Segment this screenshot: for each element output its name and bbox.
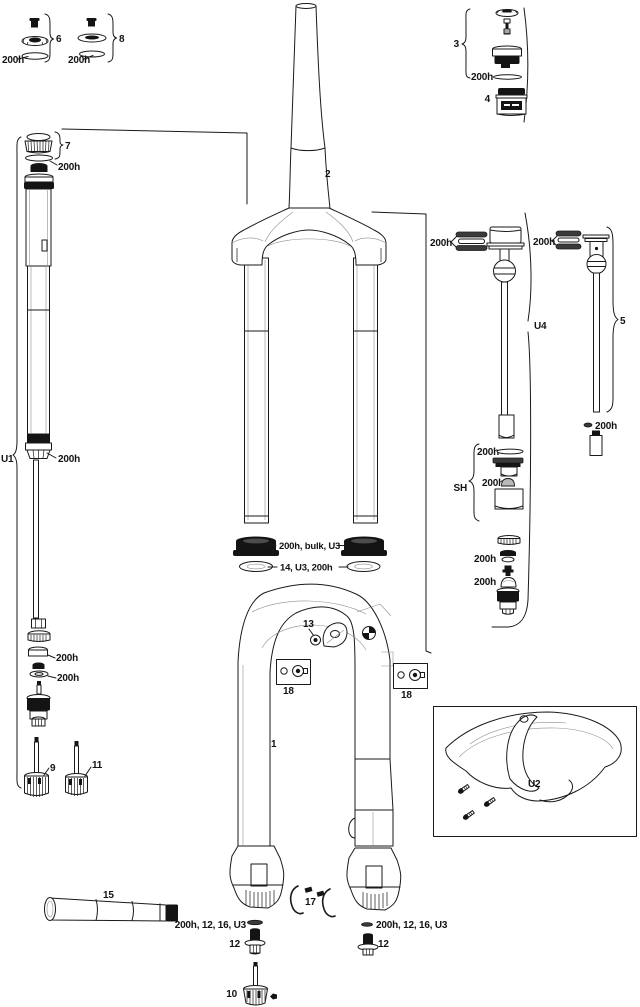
label-group-sh: SH (454, 483, 468, 494)
csu-assembly-2: 2 (232, 4, 386, 524)
label-item-12-right: 12 (378, 939, 389, 950)
fender-bolt-2 (483, 797, 496, 808)
label-200h-rebound-washer: 200h (57, 673, 79, 684)
label-200h-u4-rings: 200h (430, 238, 452, 249)
label-item-1: 1 (271, 739, 277, 750)
fender-bolt-1 (457, 784, 470, 795)
fitting-box-18-right: 18 (394, 664, 428, 702)
label-200h-5-rings: 200h (533, 237, 555, 248)
top-cap-kit-8: 8 200h (68, 14, 125, 66)
label-item-18-right: 18 (401, 690, 412, 701)
foot-bolt-right-12: 200h, 12, 16, U3 12 (358, 920, 448, 955)
top-cap-kit-6: 6 200h (2, 14, 62, 66)
label-200h-shaft-oring: 200h (595, 421, 617, 432)
spring-clips-17: 17 (291, 886, 335, 917)
label-200h-bumper-seal: 200h (474, 577, 496, 588)
air-spring-group-u4: U4 200h SH 200h 200h (372, 212, 547, 653)
label-item-17: 17 (305, 897, 316, 908)
label-item-3: 3 (454, 39, 460, 50)
label-group-u4: U4 (534, 321, 547, 332)
label-item-18-left: 18 (283, 686, 294, 697)
label-200h-cap7: 200h (58, 162, 80, 173)
fork-exploded-parts-diagram: 6 200h 8 200h 3 200h 4 (0, 0, 640, 1007)
rebound-knob-10: 10 (226, 962, 277, 1005)
label-200h-kit6: 200h (2, 55, 24, 66)
air-shaft-5: 200h 5 200h (533, 227, 626, 456)
label-200h-kit3: 200h (471, 72, 493, 83)
foot-bolt-left-12: 200h, 12, 16, U3 12 (175, 920, 265, 954)
label-200h-rebound-cap: 200h (56, 653, 78, 664)
label-group-u2: U2 (528, 779, 541, 790)
dust-seals: 200h, bulk, U3 (233, 537, 387, 557)
fender-box-u2: U2 (434, 707, 637, 837)
label-200h-kit8: 200h (68, 55, 90, 66)
tokens-4: 4 (485, 88, 527, 116)
foam-rings: 14, U3, 200h (240, 562, 381, 574)
label-item-9: 9 (50, 763, 56, 774)
adjuster-knob-11: 11 (66, 741, 103, 796)
damper-assembly-u1: U1 7 200h 200h (1, 129, 247, 788)
label-item-5: 5 (620, 316, 626, 327)
label-item-2: 2 (325, 169, 331, 180)
label-crush-washer-right: 200h, 12, 16, U3 (376, 920, 448, 931)
label-item-13: 13 (303, 619, 314, 630)
label-item-8: 8 (119, 34, 125, 45)
fender-bolt-3 (462, 810, 475, 821)
label-200h-sealhead: 200h (58, 454, 80, 465)
label-dust-seal-note: 200h, bulk, U3 (279, 541, 340, 552)
label-crush-washer-left: 200h, 12, 16, U3 (175, 920, 247, 931)
label-200h-sh-seal: 200h (482, 478, 504, 489)
label-item-4: 4 (485, 94, 491, 105)
label-item-12-left: 12 (229, 939, 240, 950)
adjuster-knob-9: 9 (25, 737, 57, 797)
fitting-box-18-left: 18 (277, 660, 311, 698)
label-200h-stack-oring: 200h (474, 554, 496, 565)
label-item-15: 15 (103, 890, 114, 901)
cable-guide-13: 13 (303, 619, 347, 647)
label-item-6: 6 (56, 34, 62, 45)
label-foam-ring-note: 14, U3, 200h (280, 563, 333, 574)
thru-axle-15: 15 (45, 890, 179, 922)
label-item-7: 7 (65, 141, 71, 152)
label-group-u1: U1 (1, 454, 14, 465)
lowers-assembly-1: 1 (230, 584, 401, 910)
label-item-10: 10 (226, 989, 237, 1000)
label-200h-sh-ring: 200h (477, 447, 499, 458)
label-item-11: 11 (92, 760, 103, 771)
